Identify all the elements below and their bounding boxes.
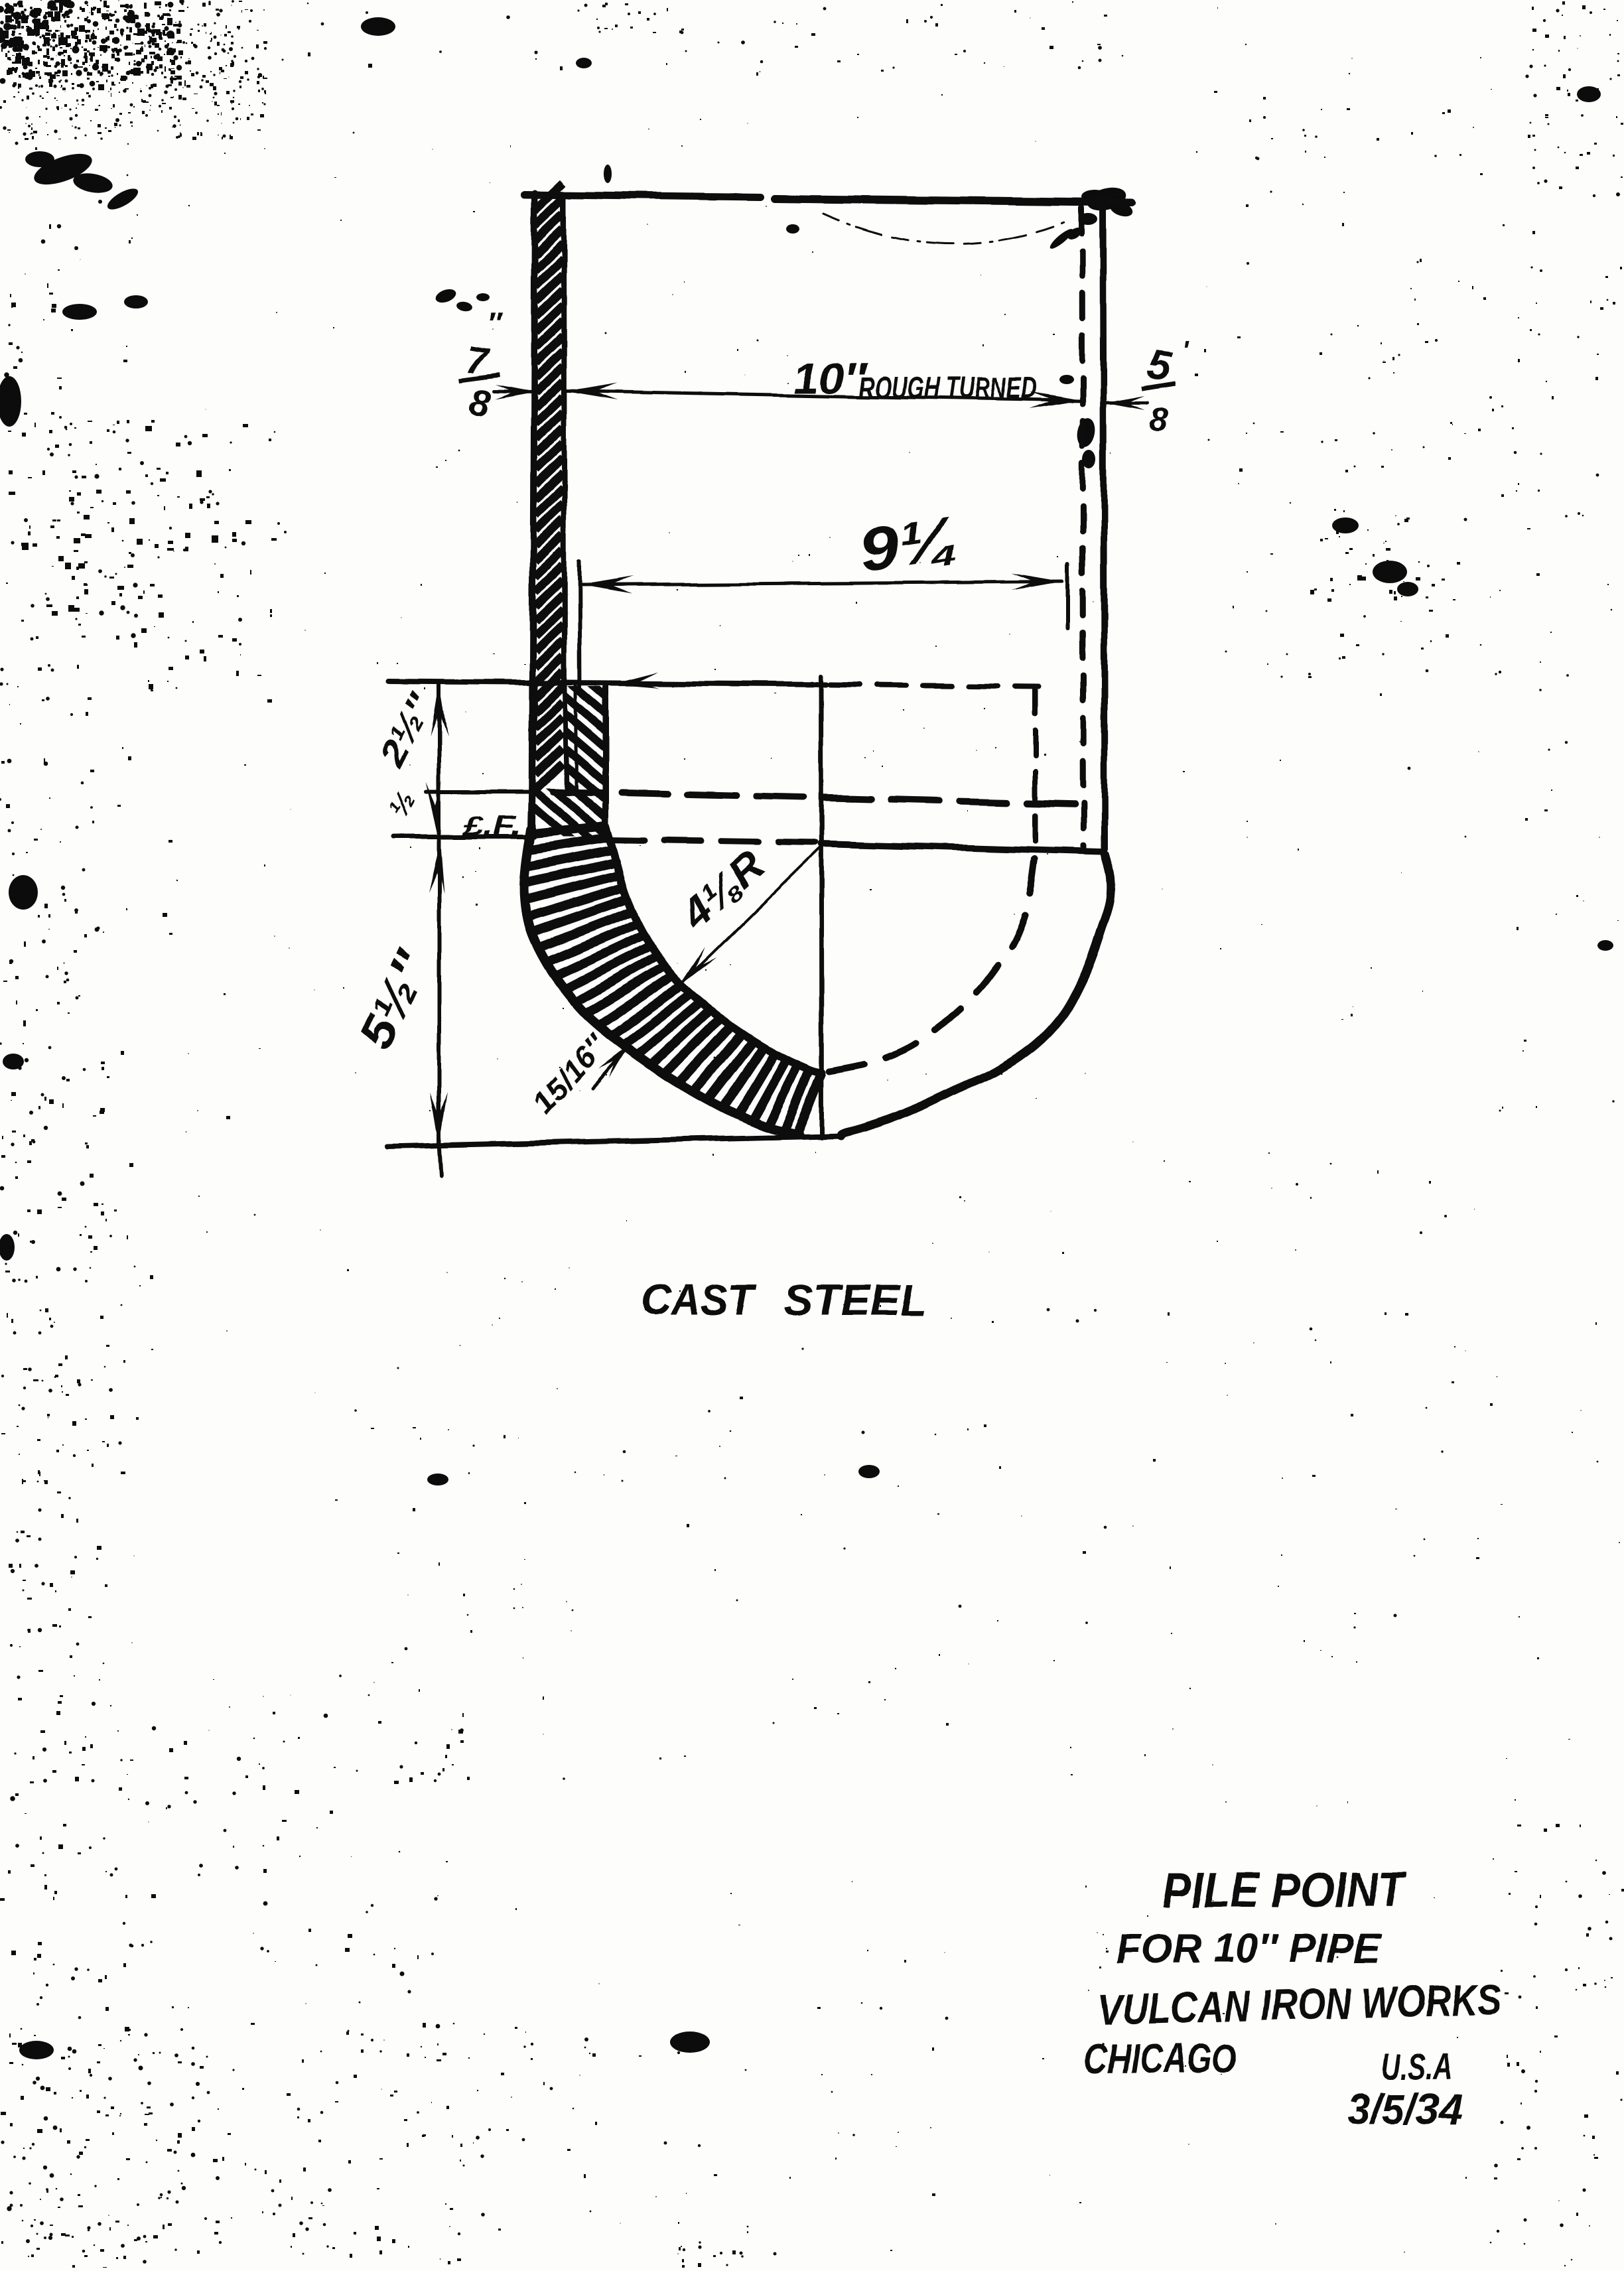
- svg-text:CAST: CAST: [641, 1275, 756, 1324]
- svg-text:CHICAGO: CHICAGO: [1084, 2036, 1237, 2082]
- svg-text:ROUGH TURNED: ROUGH TURNED: [858, 370, 1036, 405]
- svg-text:3/5/34: 3/5/34: [1347, 2085, 1463, 2134]
- svg-text:STEEL: STEEL: [784, 1275, 927, 1324]
- svg-text:PILE POINT: PILE POINT: [1162, 1862, 1407, 1917]
- svg-text:10″: 10″: [793, 354, 868, 402]
- svg-text:9¼: 9¼: [855, 504, 963, 585]
- svg-text:FOR 10″ PIPE: FOR 10″ PIPE: [1116, 1926, 1383, 1972]
- svg-text:U.S.A: U.S.A: [1381, 2045, 1453, 2087]
- svg-text:£.F.: £.F.: [461, 809, 523, 841]
- svg-text:ʹ: ʹ: [1182, 335, 1189, 364]
- svg-text:″: ″: [488, 307, 504, 342]
